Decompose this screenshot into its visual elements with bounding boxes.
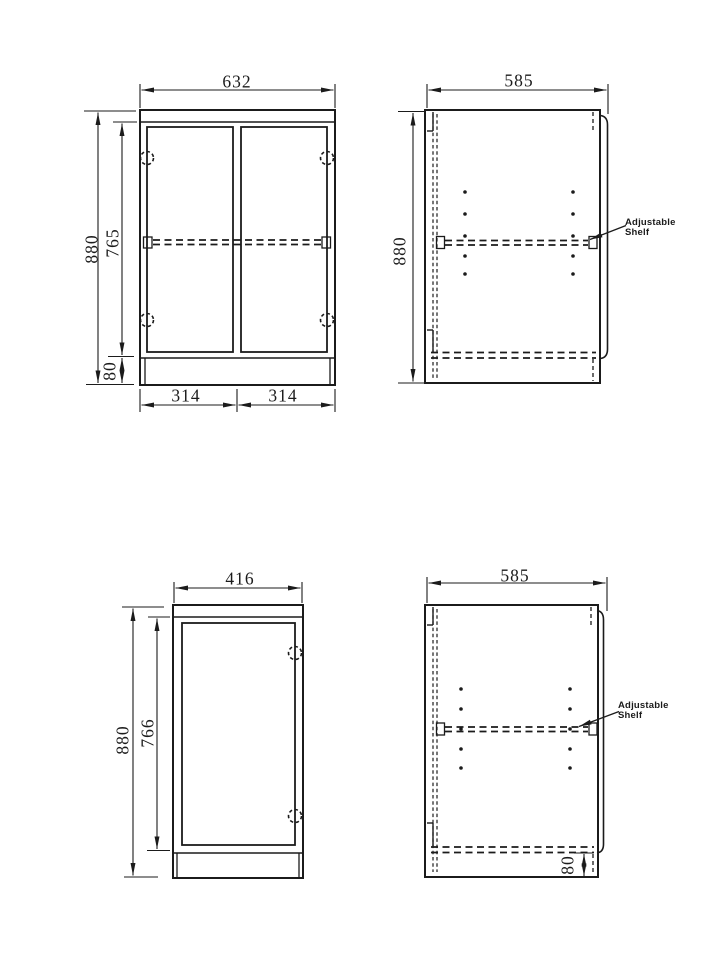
- shelf-hidden-line: [153, 240, 322, 245]
- dim-label-front-two-door-door-height: 765: [103, 228, 124, 257]
- door-panel: [182, 623, 295, 845]
- dim-label-side-lower-plinth: 80: [558, 855, 579, 875]
- dim-label-front-two-door-height: 880: [82, 234, 103, 263]
- dim-label-door-width-left: 314: [171, 386, 200, 407]
- cabinet-outline: [173, 605, 303, 878]
- shelf-hidden-line: [445, 727, 588, 732]
- dim-label-side-lower-depth: 585: [500, 566, 529, 587]
- dim-label-front-one-door-height: 880: [113, 725, 134, 754]
- side-view-lower: [425, 577, 619, 877]
- shelf-pin-holes: [459, 687, 572, 770]
- dim-label-side-upper-depth: 585: [504, 71, 533, 92]
- dim-label-front-one-door-door-height: 766: [138, 718, 159, 747]
- shelf-support-right: [589, 723, 597, 735]
- cabinet-dimension-drawing: 632 880 765 80 314 314 585 880 Adjustabl…: [0, 0, 720, 960]
- adjustable-shelf-note: Adjustable Shelf: [625, 218, 687, 237]
- dim-label-door-width-right: 314: [268, 386, 297, 407]
- carcass-outline: [425, 605, 598, 877]
- cabinet-outline: [140, 110, 335, 385]
- bottom-panel-hidden-line: [431, 847, 594, 853]
- dim-label-front-two-door-width: 632: [222, 72, 251, 93]
- shelf-support-left: [437, 723, 445, 735]
- dim-label-front-two-door-plinth: 80: [100, 361, 121, 381]
- dim-label-side-upper-height: 880: [390, 236, 411, 265]
- drawing-linework: [0, 0, 720, 960]
- shelf-support-left: [437, 237, 445, 249]
- adjustable-shelf-note: Adjustable Shelf: [618, 701, 680, 720]
- side-view-upper: [398, 84, 626, 383]
- shelf-hidden-line: [445, 241, 588, 246]
- dimension-door-widths: [140, 389, 335, 412]
- bottom-panel-hidden-line: [431, 353, 596, 359]
- dim-label-front-one-door-width: 416: [225, 569, 254, 590]
- shelf-pin-holes: [463, 190, 575, 276]
- door-edge-profile: [601, 116, 608, 359]
- carcass-outline: [425, 110, 600, 383]
